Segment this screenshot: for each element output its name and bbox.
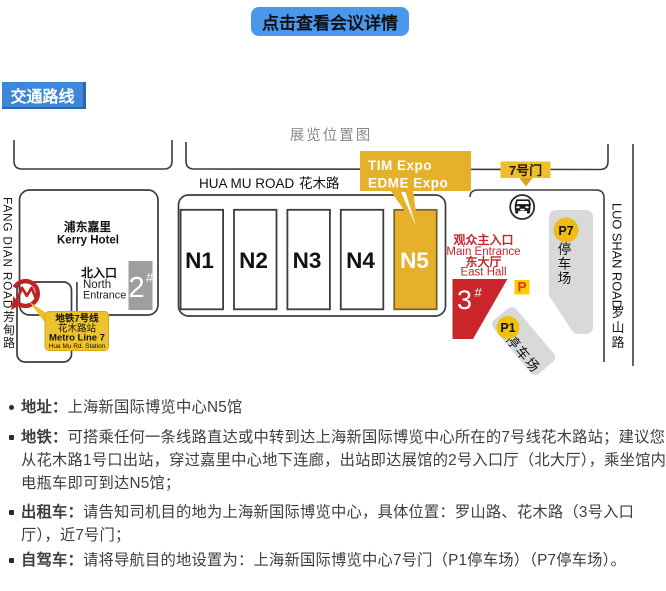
svg-text:P: P (517, 280, 526, 295)
svg-text:#: # (146, 270, 154, 285)
svg-text:3: 3 (457, 285, 472, 315)
svg-text:甸: 甸 (3, 323, 15, 337)
svg-text:N1: N1 (185, 248, 214, 273)
svg-text:花木路: 花木路 (299, 176, 340, 191)
svg-text:Hua Mu Rd. Station: Hua Mu Rd. Station (49, 343, 106, 350)
svg-text:TIM Expo: TIM Expo (368, 158, 432, 173)
svg-text:EDME Expo: EDME Expo (368, 176, 448, 191)
svg-text:N4: N4 (346, 248, 375, 273)
svg-text:LUO SHAN ROAD: LUO SHAN ROAD (610, 203, 625, 309)
svg-text:车: 车 (558, 256, 572, 272)
svg-text:停: 停 (558, 241, 572, 257)
svg-text:N2: N2 (239, 248, 268, 273)
svg-text:展览位置图: 展览位置图 (290, 127, 373, 144)
svg-text:#: # (475, 285, 483, 300)
svg-text:Metro Line 7: Metro Line 7 (49, 333, 105, 344)
svg-text:N3: N3 (293, 248, 322, 273)
svg-text:Entrance: Entrance (83, 290, 126, 302)
svg-text:场: 场 (558, 271, 572, 286)
svg-text:山: 山 (611, 320, 624, 335)
svg-text:路: 路 (611, 335, 624, 350)
svg-text:芳: 芳 (3, 310, 15, 324)
svg-text:East Hall: East Hall (460, 267, 506, 279)
svg-text:浦东嘉里: 浦东嘉里 (64, 220, 111, 234)
svg-text:FANG DIAN ROAD: FANG DIAN ROAD (1, 197, 15, 309)
svg-text:P1: P1 (500, 321, 515, 335)
svg-text:Kerry Hotel: Kerry Hotel (57, 235, 119, 247)
svg-text:7号门: 7号门 (509, 163, 542, 178)
svg-text:路: 路 (3, 335, 15, 350)
svg-text:罗: 罗 (611, 305, 624, 320)
svg-text:P7: P7 (558, 224, 573, 238)
svg-text:北入口: 北入口 (81, 265, 117, 280)
svg-text:N5: N5 (400, 248, 429, 273)
svg-text:观众主入口: 观众主入口 (453, 232, 513, 247)
svg-text:HUA MU ROAD: HUA MU ROAD (199, 176, 295, 191)
svg-text:2: 2 (129, 272, 145, 304)
